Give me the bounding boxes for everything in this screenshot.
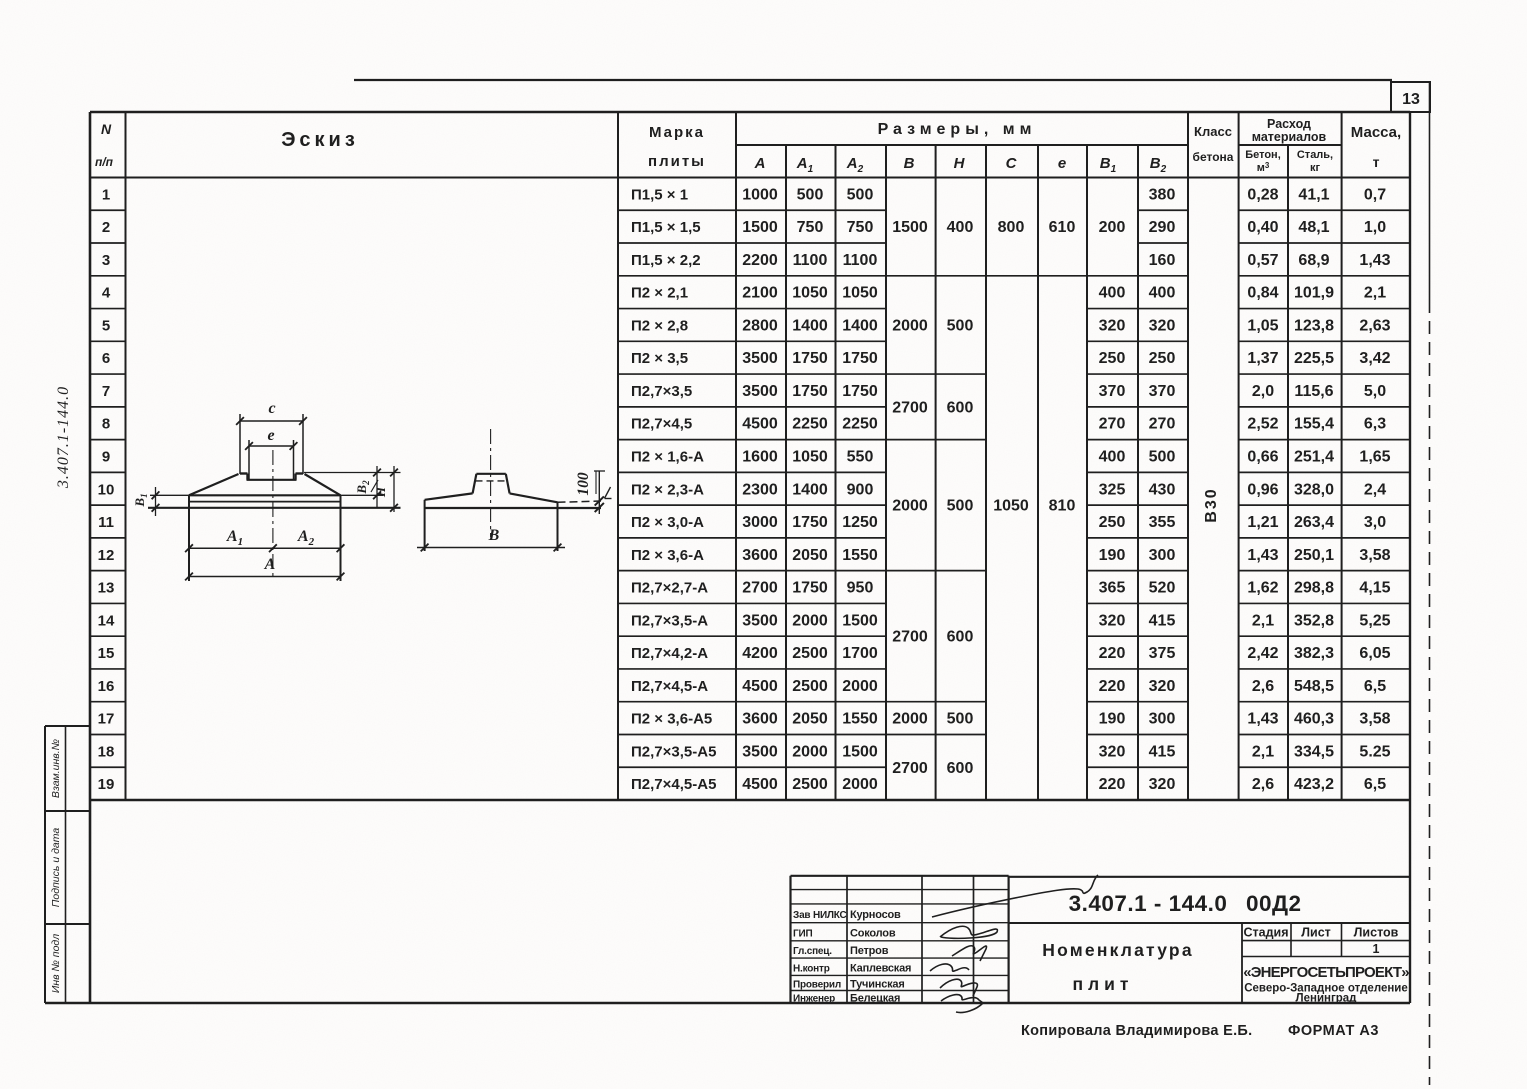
svg-text:320: 320 bbox=[1149, 317, 1176, 334]
svg-text:Масса,: Масса, bbox=[1351, 124, 1401, 141]
svg-text:4200: 4200 bbox=[742, 645, 778, 662]
svg-text:101,9: 101,9 bbox=[1294, 285, 1334, 302]
svg-text:370: 370 bbox=[1099, 383, 1126, 400]
svg-text:500: 500 bbox=[1149, 448, 1176, 465]
svg-text:Белецкая: Белецкая bbox=[850, 992, 900, 1004]
svg-text:250: 250 bbox=[1149, 350, 1176, 367]
svg-text:3500: 3500 bbox=[742, 612, 778, 629]
svg-text:2000: 2000 bbox=[892, 318, 928, 335]
svg-text:2,0: 2,0 bbox=[1252, 383, 1274, 400]
svg-text:1400: 1400 bbox=[842, 317, 878, 334]
svg-text:2,6: 2,6 bbox=[1252, 678, 1274, 695]
svg-text:2500: 2500 bbox=[792, 645, 828, 662]
svg-text:Сталь,: Сталь, bbox=[1297, 149, 1333, 161]
svg-text:В30: В30 bbox=[1203, 487, 1220, 522]
svg-text:1050: 1050 bbox=[792, 448, 828, 465]
svg-text:2050: 2050 bbox=[792, 711, 828, 728]
svg-text:100: 100 bbox=[575, 472, 592, 496]
svg-text:115,6: 115,6 bbox=[1294, 383, 1333, 400]
svg-text:А: А bbox=[264, 556, 276, 573]
svg-text:300: 300 bbox=[1149, 711, 1176, 728]
svg-text:бетона: бетона bbox=[1193, 150, 1234, 164]
svg-text:Эскиз: Эскиз bbox=[281, 129, 359, 151]
svg-text:6: 6 bbox=[102, 350, 110, 367]
svg-text:Ленинград: Ленинград bbox=[1296, 993, 1358, 1005]
svg-text:270: 270 bbox=[1149, 416, 1176, 433]
svg-text:П2,7×3,5-А: П2,7×3,5-А bbox=[631, 612, 708, 629]
svg-text:ГИП: ГИП bbox=[793, 928, 812, 939]
svg-text:600: 600 bbox=[947, 399, 974, 416]
svg-text:1750: 1750 bbox=[792, 514, 828, 531]
svg-text:1750: 1750 bbox=[842, 383, 878, 400]
svg-text:е: е bbox=[1058, 155, 1066, 172]
svg-text:4500: 4500 bbox=[742, 416, 778, 433]
svg-text:Соколов: Соколов bbox=[850, 927, 896, 939]
svg-text:225,5: 225,5 bbox=[1294, 350, 1334, 367]
svg-text:2250: 2250 bbox=[792, 416, 828, 433]
svg-text:Размеры, мм: Размеры, мм bbox=[878, 121, 1037, 138]
svg-text:41,1: 41,1 bbox=[1298, 186, 1329, 203]
svg-text:2700: 2700 bbox=[742, 580, 778, 597]
svg-text:370: 370 bbox=[1149, 383, 1176, 400]
svg-text:4: 4 bbox=[102, 285, 111, 302]
svg-text:Инв № подл: Инв № подл bbox=[50, 934, 62, 993]
svg-text:365: 365 bbox=[1099, 580, 1126, 597]
svg-text:Бетон,: Бетон, bbox=[1245, 149, 1281, 161]
svg-text:3: 3 bbox=[102, 252, 110, 269]
svg-text:2000: 2000 bbox=[842, 678, 878, 695]
svg-text:3,58: 3,58 bbox=[1359, 547, 1390, 564]
svg-text:200: 200 bbox=[1099, 219, 1126, 236]
svg-text:0,66: 0,66 bbox=[1247, 448, 1278, 465]
svg-text:6,5: 6,5 bbox=[1364, 678, 1386, 695]
svg-text:900: 900 bbox=[847, 481, 874, 498]
svg-text:160: 160 bbox=[1149, 252, 1176, 269]
svg-text:155,4: 155,4 bbox=[1294, 416, 1334, 433]
svg-text:1750: 1750 bbox=[792, 580, 828, 597]
svg-text:2000: 2000 bbox=[792, 612, 828, 629]
svg-text:2000: 2000 bbox=[792, 743, 828, 760]
svg-text:0,84: 0,84 bbox=[1247, 285, 1278, 302]
svg-text:334,5: 334,5 bbox=[1294, 743, 1334, 760]
svg-text:Проверил: Проверил bbox=[793, 980, 841, 991]
svg-text:9: 9 bbox=[102, 448, 110, 465]
svg-text:300: 300 bbox=[1149, 547, 1176, 564]
svg-text:0,57: 0,57 bbox=[1247, 252, 1278, 269]
svg-text:251,4: 251,4 bbox=[1294, 448, 1334, 465]
svg-text:Класс: Класс bbox=[1194, 124, 1232, 139]
svg-text:2500: 2500 bbox=[792, 776, 828, 793]
svg-text:2,4: 2,4 bbox=[1364, 481, 1386, 498]
svg-text:11: 11 bbox=[98, 514, 114, 531]
svg-text:1: 1 bbox=[1373, 942, 1380, 956]
svg-text:1,37: 1,37 bbox=[1247, 350, 1278, 367]
svg-text:328,0: 328,0 bbox=[1294, 481, 1334, 498]
svg-text:220: 220 bbox=[1099, 776, 1126, 793]
svg-text:13: 13 bbox=[1402, 91, 1420, 108]
svg-text:220: 220 bbox=[1099, 645, 1126, 662]
svg-text:1,05: 1,05 bbox=[1247, 317, 1278, 334]
svg-text:1,43: 1,43 bbox=[1247, 547, 1278, 564]
svg-text:400: 400 bbox=[1099, 448, 1126, 465]
svg-text:Взам.инв.№: Взам.инв.№ bbox=[50, 739, 62, 798]
svg-text:Листов: Листов bbox=[1354, 926, 1399, 940]
svg-text:1000: 1000 bbox=[742, 186, 778, 203]
svg-text:А: А bbox=[754, 155, 766, 172]
svg-text:263,4: 263,4 bbox=[1294, 514, 1334, 531]
svg-text:3500: 3500 bbox=[742, 743, 778, 760]
svg-text:П1,5 × 1: П1,5 × 1 bbox=[631, 186, 688, 203]
svg-text:2,42: 2,42 bbox=[1247, 645, 1278, 662]
svg-text:В: В bbox=[904, 155, 915, 172]
svg-text:550: 550 bbox=[847, 448, 874, 465]
svg-text:П2 × 3,5: П2 × 3,5 bbox=[631, 350, 688, 367]
svg-text:00Д2: 00Д2 bbox=[1246, 891, 1302, 916]
svg-text:1,62: 1,62 bbox=[1247, 580, 1278, 597]
svg-text:1,21: 1,21 bbox=[1247, 514, 1278, 531]
svg-text:1: 1 bbox=[102, 186, 110, 203]
svg-text:1750: 1750 bbox=[792, 383, 828, 400]
svg-text:950: 950 bbox=[847, 580, 874, 597]
svg-text:Зав НИЛКС: Зав НИЛКС bbox=[793, 910, 847, 921]
svg-text:1,43: 1,43 bbox=[1247, 711, 1278, 728]
svg-text:320: 320 bbox=[1149, 678, 1176, 695]
svg-text:1550: 1550 bbox=[842, 547, 878, 564]
svg-text:Каплевская: Каплевская bbox=[850, 962, 911, 974]
svg-text:500: 500 bbox=[947, 318, 974, 335]
svg-text:1600: 1600 bbox=[742, 448, 778, 465]
svg-text:800: 800 bbox=[998, 219, 1025, 236]
svg-text:6,3: 6,3 bbox=[1364, 416, 1386, 433]
svg-text:3000: 3000 bbox=[742, 514, 778, 531]
svg-text:Н: Н bbox=[373, 486, 388, 498]
svg-text:750: 750 bbox=[797, 219, 824, 236]
svg-text:2500: 2500 bbox=[792, 678, 828, 695]
svg-text:750: 750 bbox=[847, 219, 874, 236]
svg-text:1100: 1100 bbox=[843, 252, 878, 269]
svg-text:3,0: 3,0 bbox=[1364, 514, 1386, 531]
svg-text:материалов: материалов bbox=[1252, 130, 1327, 144]
svg-text:18: 18 bbox=[98, 743, 115, 760]
svg-text:68,9: 68,9 bbox=[1298, 252, 1329, 269]
svg-text:6,5: 6,5 bbox=[1364, 776, 1386, 793]
svg-text:2700: 2700 bbox=[892, 399, 928, 416]
svg-text:П2,7×4,5-А5: П2,7×4,5-А5 bbox=[631, 776, 716, 793]
svg-text:5: 5 bbox=[102, 317, 110, 334]
svg-text:2,63: 2,63 bbox=[1359, 317, 1390, 334]
svg-text:П2 × 3,6-А5: П2 × 3,6-А5 bbox=[631, 711, 712, 728]
svg-text:1500: 1500 bbox=[842, 612, 878, 629]
svg-text:П2,7×3,5: П2,7×3,5 bbox=[631, 383, 692, 400]
svg-text:325: 325 bbox=[1099, 481, 1126, 498]
svg-text:400: 400 bbox=[947, 219, 974, 236]
svg-text:600: 600 bbox=[947, 760, 974, 777]
svg-text:15: 15 bbox=[98, 645, 115, 662]
svg-text:П2 × 1,6-А: П2 × 1,6-А bbox=[631, 448, 704, 465]
svg-text:7: 7 bbox=[102, 383, 110, 400]
svg-text:2,52: 2,52 bbox=[1247, 416, 1278, 433]
svg-text:320: 320 bbox=[1099, 612, 1126, 629]
svg-text:8: 8 bbox=[102, 416, 110, 433]
svg-text:250,1: 250,1 bbox=[1294, 547, 1334, 564]
svg-text:3600: 3600 bbox=[742, 547, 778, 564]
svg-text:т: т bbox=[1373, 154, 1380, 170]
svg-text:П2,7×2,7-А: П2,7×2,7-А bbox=[631, 580, 708, 597]
svg-text:Копировала Владимирова Е.Б.: Копировала Владимирова Е.Б. bbox=[1021, 1023, 1252, 1039]
svg-text:кг: кг bbox=[1310, 162, 1321, 174]
svg-text:1250: 1250 bbox=[842, 514, 878, 531]
svg-text:5.25: 5.25 bbox=[1359, 743, 1390, 760]
svg-text:355: 355 bbox=[1149, 514, 1176, 531]
svg-text:1500: 1500 bbox=[842, 743, 878, 760]
svg-text:С: С bbox=[1006, 155, 1018, 172]
svg-text:1050: 1050 bbox=[842, 285, 878, 302]
svg-text:500: 500 bbox=[847, 186, 874, 203]
svg-text:Петров: Петров bbox=[850, 945, 889, 957]
svg-text:3.407.1-144.0: 3.407.1-144.0 bbox=[55, 386, 72, 489]
svg-text:1500: 1500 bbox=[742, 219, 778, 236]
svg-text:2000: 2000 bbox=[842, 776, 878, 793]
svg-text:П2 × 2,8: П2 × 2,8 bbox=[631, 317, 688, 334]
svg-text:4,15: 4,15 bbox=[1359, 580, 1390, 597]
svg-text:Н: Н bbox=[954, 155, 966, 172]
svg-text:6,05: 6,05 bbox=[1359, 645, 1390, 662]
svg-text:5,0: 5,0 bbox=[1364, 383, 1386, 400]
svg-text:1,0: 1,0 bbox=[1364, 219, 1386, 236]
svg-text:0,40: 0,40 bbox=[1247, 219, 1278, 236]
svg-text:П2,7×4,5-А: П2,7×4,5-А bbox=[631, 678, 708, 695]
svg-text:320: 320 bbox=[1099, 317, 1126, 334]
svg-text:423,2: 423,2 bbox=[1294, 776, 1334, 793]
svg-text:1400: 1400 bbox=[792, 317, 828, 334]
svg-text:415: 415 bbox=[1149, 612, 1176, 629]
svg-text:380: 380 bbox=[1149, 186, 1176, 203]
svg-text:48,1: 48,1 bbox=[1298, 219, 1329, 236]
svg-text:е: е bbox=[267, 427, 274, 444]
svg-text:П1,5 × 2,2: П1,5 × 2,2 bbox=[631, 252, 701, 269]
svg-text:382,3: 382,3 bbox=[1294, 645, 1334, 662]
svg-text:Расход: Расход bbox=[1267, 117, 1311, 131]
svg-text:П2 × 3,6-А: П2 × 3,6-А bbox=[631, 547, 704, 564]
svg-text:2,6: 2,6 bbox=[1252, 776, 1274, 793]
svg-text:1700: 1700 bbox=[842, 645, 878, 662]
svg-text:190: 190 bbox=[1099, 547, 1126, 564]
svg-text:2,1: 2,1 bbox=[1252, 612, 1274, 629]
svg-text:298,8: 298,8 bbox=[1294, 580, 1334, 597]
svg-text:2000: 2000 bbox=[892, 498, 928, 515]
svg-text:1750: 1750 bbox=[842, 350, 878, 367]
svg-text:2250: 2250 bbox=[842, 416, 878, 433]
svg-text:П2 × 2,3-А: П2 × 2,3-А bbox=[631, 481, 704, 498]
svg-text:375: 375 bbox=[1149, 645, 1176, 662]
svg-text:430: 430 bbox=[1149, 481, 1176, 498]
svg-text:2050: 2050 bbox=[792, 547, 828, 564]
svg-text:П2 × 3,0-А: П2 × 3,0-А bbox=[631, 514, 704, 531]
svg-text:610: 610 bbox=[1049, 219, 1076, 236]
svg-text:2,1: 2,1 bbox=[1364, 285, 1386, 302]
svg-text:19: 19 bbox=[98, 776, 115, 793]
svg-text:5,25: 5,25 bbox=[1359, 612, 1390, 629]
svg-text:0,7: 0,7 bbox=[1364, 186, 1386, 203]
svg-text:Лист: Лист bbox=[1301, 926, 1331, 940]
svg-text:2700: 2700 bbox=[892, 629, 928, 646]
svg-text:0,96: 0,96 bbox=[1247, 481, 1278, 498]
svg-text:3600: 3600 bbox=[742, 711, 778, 728]
svg-text:Н.контр: Н.контр bbox=[793, 963, 830, 974]
svg-text:плит: плит bbox=[1072, 974, 1133, 994]
svg-text:плиты: плиты bbox=[648, 153, 706, 170]
svg-text:П2,7×3,5-А5: П2,7×3,5-А5 bbox=[631, 743, 716, 760]
svg-text:1,65: 1,65 bbox=[1359, 448, 1390, 465]
svg-text:1750: 1750 bbox=[792, 350, 828, 367]
svg-text:400: 400 bbox=[1149, 285, 1176, 302]
svg-text:Номенклатура: Номенклатура bbox=[1042, 940, 1194, 960]
svg-text:600: 600 bbox=[947, 629, 974, 646]
svg-text:2: 2 bbox=[102, 219, 110, 236]
svg-text:250: 250 bbox=[1099, 514, 1126, 531]
svg-text:Марка: Марка bbox=[649, 124, 705, 141]
svg-text:П2,7×4,2-А: П2,7×4,2-А bbox=[631, 645, 708, 662]
svg-text:П2 × 2,1: П2 × 2,1 bbox=[631, 285, 688, 302]
svg-text:12: 12 bbox=[98, 547, 115, 564]
svg-text:520: 520 bbox=[1149, 580, 1176, 597]
svg-text:500: 500 bbox=[797, 186, 824, 203]
svg-text:2,1: 2,1 bbox=[1252, 743, 1274, 760]
svg-text:14: 14 bbox=[98, 612, 115, 629]
svg-text:Стадия: Стадия bbox=[1243, 926, 1288, 940]
svg-text:1400: 1400 bbox=[792, 481, 828, 498]
svg-text:415: 415 bbox=[1149, 743, 1176, 760]
svg-text:320: 320 bbox=[1149, 776, 1176, 793]
svg-text:220: 220 bbox=[1099, 678, 1126, 695]
svg-text:16: 16 bbox=[98, 678, 115, 695]
svg-text:3500: 3500 bbox=[742, 383, 778, 400]
svg-text:«ЭНЕРГОСЕТЬПРОЕКТ»: «ЭНЕРГОСЕТЬПРОЕКТ» bbox=[1243, 964, 1409, 981]
svg-text:13: 13 bbox=[98, 580, 115, 597]
svg-text:1,43: 1,43 bbox=[1359, 252, 1390, 269]
svg-text:3500: 3500 bbox=[742, 350, 778, 367]
svg-text:2300: 2300 bbox=[742, 481, 778, 498]
svg-text:Гл.спец.: Гл.спец. bbox=[793, 946, 832, 957]
svg-text:с: с bbox=[268, 400, 275, 417]
svg-text:2200: 2200 bbox=[742, 252, 778, 269]
svg-text:Подпись и дата: Подпись и дата bbox=[50, 828, 62, 908]
svg-text:п/п: п/п bbox=[95, 155, 114, 169]
svg-text:460,3: 460,3 bbox=[1294, 711, 1334, 728]
svg-text:3,58: 3,58 bbox=[1359, 711, 1390, 728]
svg-text:ФОРМАТ А3: ФОРМАТ А3 bbox=[1288, 1023, 1379, 1039]
svg-text:400: 400 bbox=[1099, 285, 1126, 302]
svg-text:1050: 1050 bbox=[993, 498, 1029, 515]
svg-text:Инженер: Инженер bbox=[793, 993, 835, 1004]
svg-text:320: 320 bbox=[1099, 743, 1126, 760]
svg-text:2100: 2100 bbox=[742, 285, 778, 302]
svg-text:10: 10 bbox=[98, 481, 115, 498]
svg-text:500: 500 bbox=[947, 498, 974, 515]
svg-text:3.407.1 - 144.0: 3.407.1 - 144.0 bbox=[1069, 891, 1228, 916]
svg-text:270: 270 bbox=[1099, 416, 1126, 433]
svg-text:3,42: 3,42 bbox=[1359, 350, 1390, 367]
svg-text:1550: 1550 bbox=[842, 711, 878, 728]
svg-text:1500: 1500 bbox=[892, 219, 928, 236]
svg-text:4500: 4500 bbox=[742, 678, 778, 695]
svg-text:548,5: 548,5 bbox=[1294, 678, 1334, 695]
svg-text:Курносов: Курносов bbox=[850, 909, 901, 921]
svg-text:190: 190 bbox=[1099, 711, 1126, 728]
svg-text:2800: 2800 bbox=[742, 317, 778, 334]
svg-text:1100: 1100 bbox=[793, 252, 828, 269]
svg-text:500: 500 bbox=[947, 711, 974, 728]
svg-text:290: 290 bbox=[1149, 219, 1176, 236]
svg-text:17: 17 bbox=[98, 711, 115, 728]
svg-text:810: 810 bbox=[1049, 498, 1076, 515]
svg-text:П2,7×4,5: П2,7×4,5 bbox=[631, 416, 692, 433]
svg-text:1050: 1050 bbox=[792, 285, 828, 302]
svg-text:4500: 4500 bbox=[742, 776, 778, 793]
svg-text:П1,5 × 1,5: П1,5 × 1,5 bbox=[631, 219, 701, 236]
svg-text:250: 250 bbox=[1099, 350, 1126, 367]
svg-text:352,8: 352,8 bbox=[1294, 612, 1334, 629]
svg-text:Тучинская: Тучинская bbox=[850, 979, 905, 991]
svg-text:В: В bbox=[488, 527, 500, 544]
svg-text:123,8: 123,8 bbox=[1294, 317, 1334, 334]
svg-text:0,28: 0,28 bbox=[1247, 186, 1278, 203]
svg-text:N: N bbox=[101, 121, 112, 137]
svg-text:2700: 2700 bbox=[892, 760, 928, 777]
svg-text:2000: 2000 bbox=[892, 711, 928, 728]
